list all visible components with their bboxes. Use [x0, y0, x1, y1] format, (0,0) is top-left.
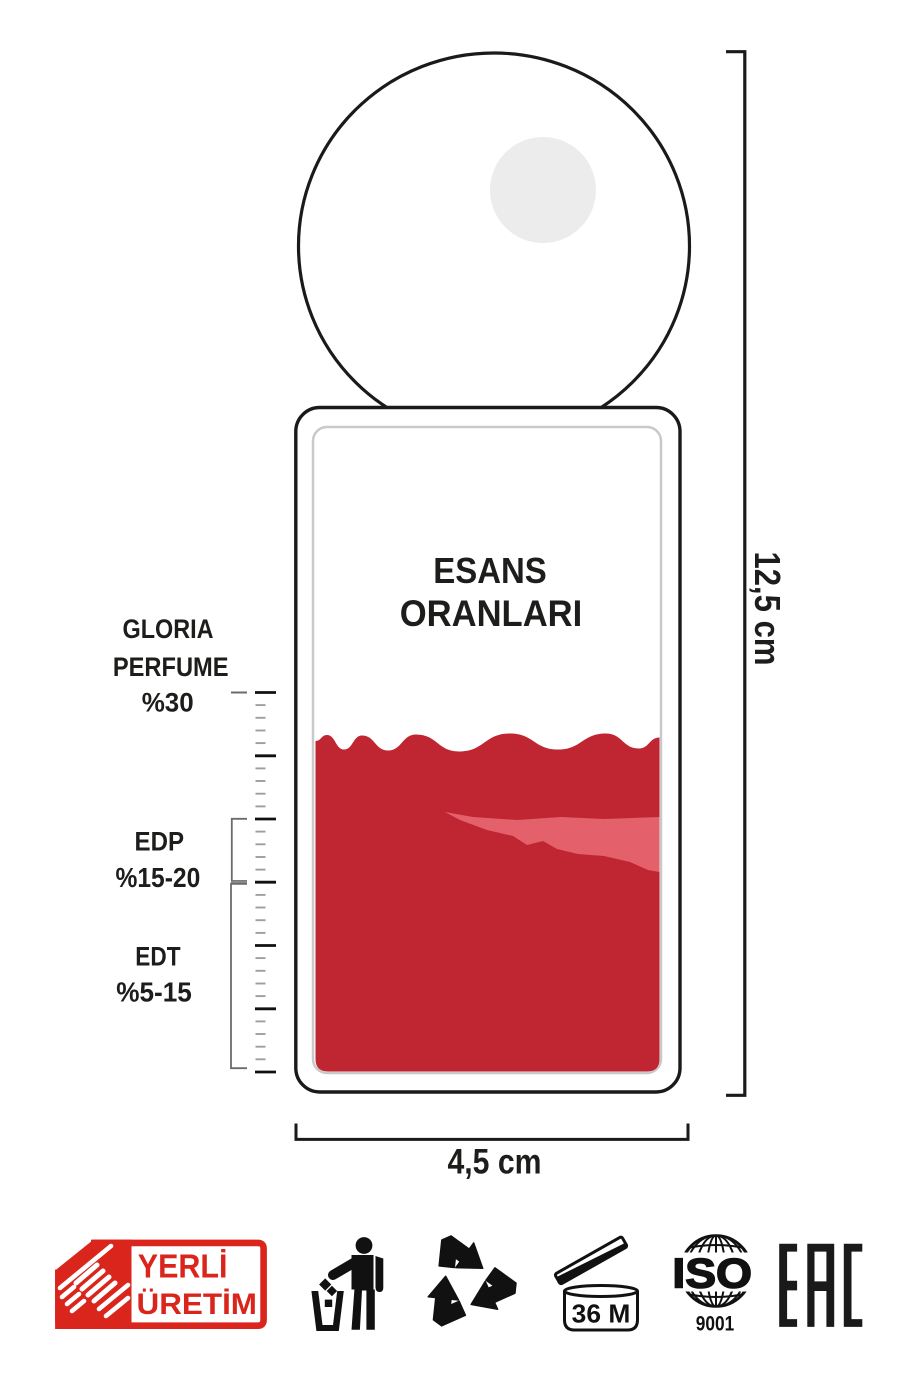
svg-text:12,5 cm: 12,5 cm	[747, 552, 788, 666]
svg-text:EDT: EDT	[135, 942, 180, 972]
svg-text:EDP: EDP	[135, 826, 185, 856]
svg-text:ESANS: ESANS	[433, 550, 547, 591]
svg-text:GLORIA: GLORIA	[123, 613, 214, 644]
svg-text:36 M: 36 M	[572, 1299, 631, 1329]
svg-text:ISO: ISO	[672, 1250, 752, 1297]
svg-text:4,5 cm: 4,5 cm	[448, 1143, 542, 1182]
svg-text:ÜRETİM: ÜRETİM	[137, 1288, 258, 1321]
svg-text:9001: 9001	[696, 1312, 734, 1336]
svg-text:ORANLARI: ORANLARI	[400, 592, 583, 634]
svg-text:YERLİ: YERLİ	[138, 1249, 228, 1286]
svg-text:PERFUME: PERFUME	[113, 651, 229, 682]
svg-text:%5-15: %5-15	[116, 977, 192, 1008]
svg-text:%15-20: %15-20	[116, 862, 201, 893]
svg-text:%30: %30	[142, 687, 194, 718]
